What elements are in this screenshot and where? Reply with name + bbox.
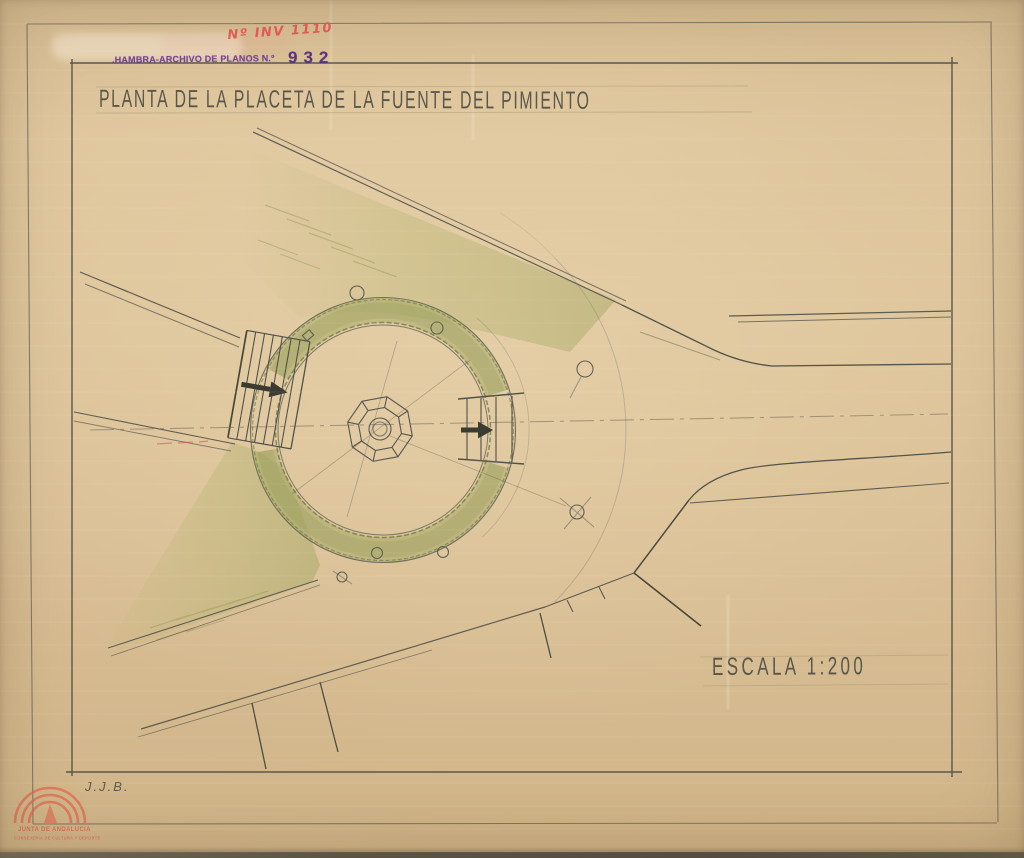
junta-logo-icon [15,788,85,823]
junta-logo-institution: JUNTA DE ANDALUCIA [18,825,91,833]
plan-drawing-svg [0,0,1024,858]
archive-stamp-text: .HAMBRA-ARCHIVO DE PLANOS N.º [112,53,275,65]
plan-title: PLANTA DE LA PLACETA DE LA FUENTE DEL PI… [99,85,591,116]
scan-edge-strip [0,852,1024,858]
junta-logo-department: CONSEJERÍA DE CULTURA Y DEPORTE [14,836,101,841]
centerline [90,414,948,430]
octagonal-fountain [292,341,566,517]
scanned-plan-sheet: Nº INV 1110 .HAMBRA-ARCHIVO DE PLANOS N.… [0,0,1024,858]
scale-label: ESCALA 1:200 [712,652,866,682]
author-initials: J.J.B. [85,779,130,794]
archive-stamp-number: 932 [288,48,334,68]
right-steps [458,393,524,464]
green-slope-areas [108,150,616,650]
stair-approach-lines [74,272,240,451]
